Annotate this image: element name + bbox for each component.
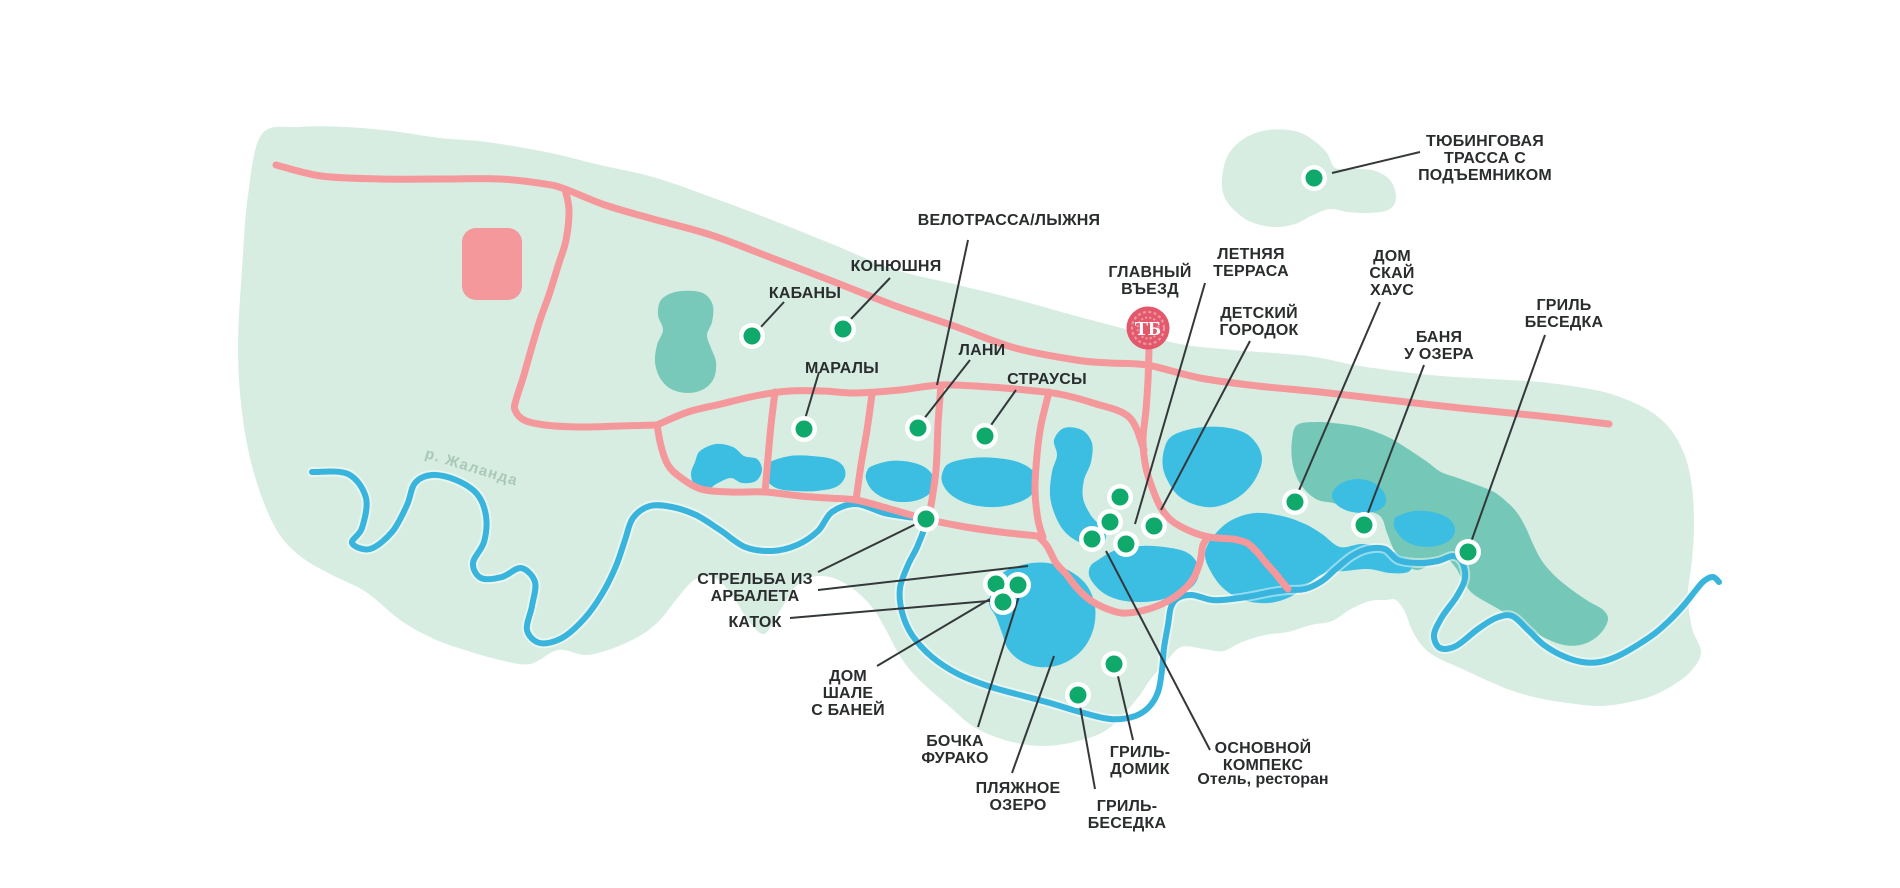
svg-text:МАРАЛЫ: МАРАЛЫ (805, 360, 879, 377)
svg-text:КАБАНЫ: КАБАНЫ (769, 285, 841, 302)
svg-text:ВЕЛОТРАССА/ЛЫЖНЯ: ВЕЛОТРАССА/ЛЫЖНЯ (918, 212, 1100, 229)
svg-text:ГРИЛЬ-ДОМИК: ГРИЛЬ-ДОМИК (1110, 744, 1171, 778)
svg-text:ЛАНИ: ЛАНИ (959, 342, 1006, 359)
svg-text:ЛЕТНЯЯТЕРРАСА: ЛЕТНЯЯТЕРРАСА (1213, 246, 1289, 280)
svg-text:СТРАУСЫ: СТРАУСЫ (1007, 371, 1087, 388)
svg-text:ДЕТСКИЙГОРОДОК: ДЕТСКИЙГОРОДОК (1219, 303, 1298, 339)
svg-text:ДОМСКАЙХАУС: ДОМСКАЙХАУС (1369, 248, 1414, 299)
svg-text:СТРЕЛЬБА ИЗАРБАЛЕТА: СТРЕЛЬБА ИЗАРБАЛЕТА (697, 571, 813, 605)
svg-text:КОНЮШНЯ: КОНЮШНЯ (851, 258, 942, 275)
svg-text:БОЧКАФУРАКО: БОЧКАФУРАКО (921, 733, 988, 767)
svg-text:ТБ: ТБ (1135, 318, 1162, 340)
svg-text:КАТОК: КАТОК (728, 614, 781, 631)
svg-text:ОСНОВНОЙКОМПЕКС: ОСНОВНОЙКОМПЕКС (1215, 738, 1312, 774)
svg-text:ГРИЛЬ-БЕСЕДКА: ГРИЛЬ-БЕСЕДКА (1088, 798, 1167, 832)
svg-text:Отель, ресторан: Отель, ресторан (1197, 771, 1328, 788)
